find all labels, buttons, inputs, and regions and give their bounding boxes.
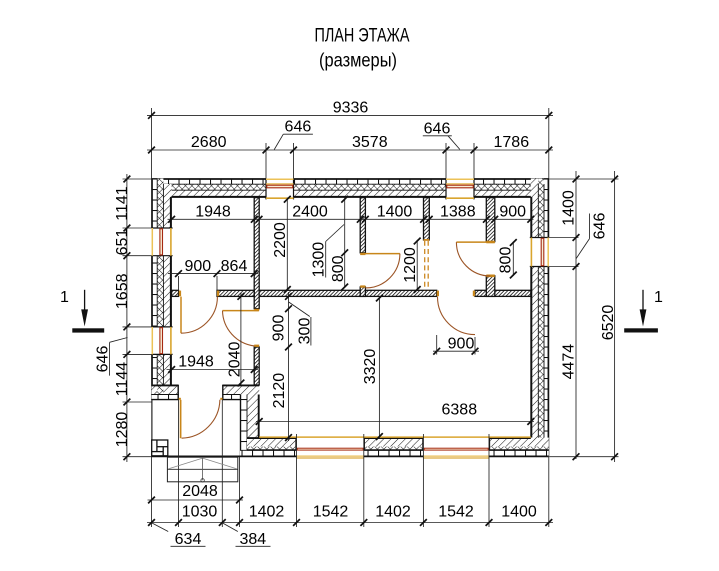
svg-text:1030: 1030 (182, 503, 218, 520)
svg-text:ПЛАН ЭТАЖА: ПЛАН ЭТАЖА (315, 25, 410, 47)
svg-text:646: 646 (592, 213, 609, 240)
svg-text:800: 800 (330, 255, 347, 282)
svg-text:3578: 3578 (352, 134, 388, 151)
svg-text:2400: 2400 (292, 204, 328, 221)
svg-text:1400: 1400 (377, 204, 413, 221)
svg-text:1786: 1786 (494, 134, 530, 151)
svg-text:1542: 1542 (313, 503, 349, 520)
svg-text:900: 900 (499, 204, 526, 221)
svg-text:6520: 6520 (600, 305, 617, 341)
svg-text:4474: 4474 (561, 344, 578, 380)
svg-text:1948: 1948 (178, 354, 214, 371)
svg-text:1: 1 (60, 289, 69, 306)
svg-text:1542: 1542 (438, 503, 474, 520)
svg-text:2048: 2048 (182, 483, 218, 500)
svg-text:1948: 1948 (195, 204, 231, 221)
svg-text:900: 900 (184, 258, 211, 275)
svg-text:1400: 1400 (561, 190, 578, 226)
svg-text:900: 900 (271, 315, 288, 342)
svg-text:651: 651 (114, 229, 131, 256)
svg-text:3320: 3320 (362, 349, 379, 385)
svg-text:2120: 2120 (271, 373, 288, 409)
svg-text:2200: 2200 (272, 222, 289, 258)
svg-text:1402: 1402 (375, 503, 411, 520)
svg-text:1141: 1141 (114, 186, 131, 221)
svg-text:(размеры): (размеры) (319, 50, 397, 72)
svg-text:1300: 1300 (311, 242, 328, 278)
svg-text:6388: 6388 (442, 402, 478, 419)
svg-text:384: 384 (239, 531, 266, 548)
svg-text:900: 900 (448, 335, 475, 352)
svg-text:864: 864 (221, 258, 248, 275)
svg-text:2680: 2680 (191, 134, 227, 151)
svg-text:1400: 1400 (501, 503, 537, 520)
svg-text:1388: 1388 (440, 204, 476, 221)
svg-text:646: 646 (424, 120, 451, 137)
svg-text:646: 646 (285, 119, 312, 136)
svg-text:1200: 1200 (402, 247, 419, 283)
svg-text:1: 1 (654, 289, 663, 306)
svg-text:800: 800 (497, 247, 514, 274)
svg-text:2040: 2040 (226, 342, 243, 378)
svg-text:1402: 1402 (249, 503, 285, 520)
svg-text:1658: 1658 (114, 273, 131, 309)
svg-text:1280: 1280 (114, 412, 131, 448)
svg-text:634: 634 (175, 531, 202, 548)
svg-text:646: 646 (94, 346, 111, 373)
svg-text:9336: 9336 (333, 100, 369, 117)
svg-text:1144: 1144 (114, 362, 131, 397)
